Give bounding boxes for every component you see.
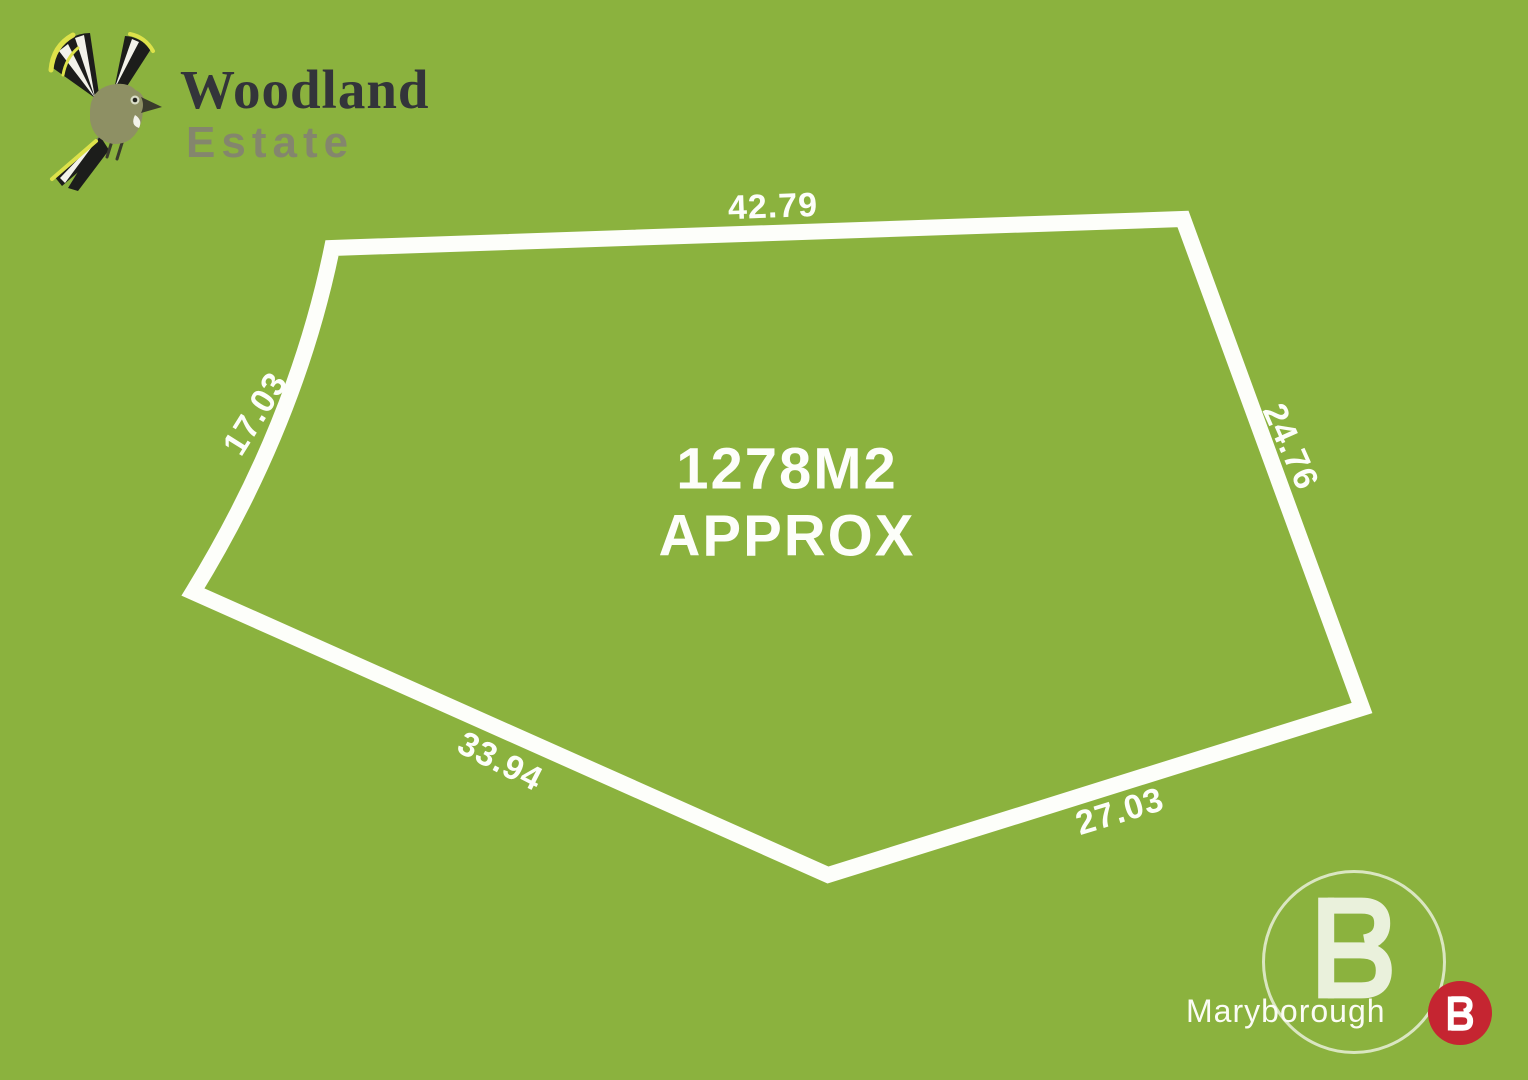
area-line2: APPROX xyxy=(659,503,916,570)
area-line1: 1278M2 xyxy=(659,436,916,503)
agency-badge xyxy=(1428,981,1492,1045)
b-monogram-watermark-icon xyxy=(1315,896,1395,1000)
dim-label-top: 42.79 xyxy=(727,186,818,228)
lot-area-label: 1278M2 APPROX xyxy=(659,436,916,569)
b-monogram-badge-icon xyxy=(1447,996,1474,1031)
office-name: Maryborough xyxy=(1186,993,1386,1030)
lot-flyer: Woodland Estate 42.79 17.03 24.76 33.94 … xyxy=(0,0,1528,1080)
